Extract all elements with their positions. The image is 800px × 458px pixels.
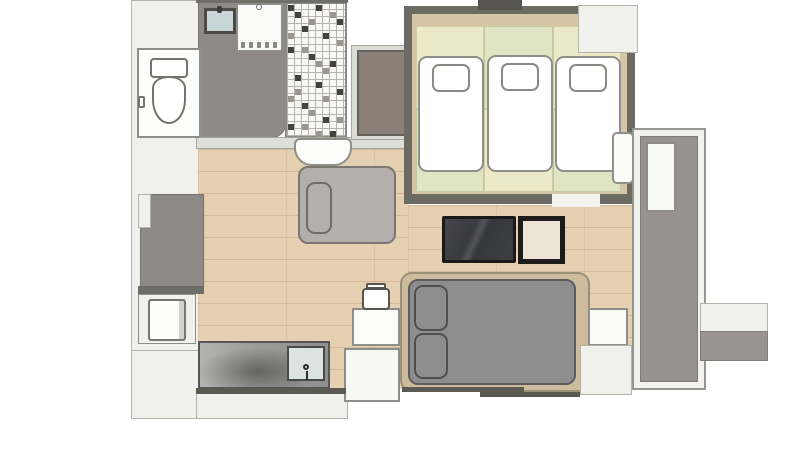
entrance-step <box>138 286 204 294</box>
floor-plan <box>0 0 800 458</box>
vanity-faucet-icon <box>217 6 222 13</box>
bed-south-wall-2 <box>480 392 580 397</box>
exterior-bottom-left-wall <box>131 350 201 419</box>
exterior-bottom-right-door <box>580 345 632 395</box>
neighbor-balcony-strip <box>700 331 768 361</box>
toilet-tank <box>150 58 188 78</box>
washing-machine-panel <box>241 42 278 48</box>
tatami-room-window <box>478 0 522 10</box>
toilet-door-knob-icon <box>138 96 145 108</box>
double-bed-pillow-1 <box>414 285 448 331</box>
bathroom-tile-pattern <box>288 5 294 11</box>
mini-fridge <box>148 299 186 341</box>
balcony-bench <box>646 142 676 212</box>
side-table <box>518 216 565 264</box>
exterior-top-right-notch <box>578 5 638 53</box>
toilet-bowl <box>152 76 186 124</box>
top-wall-line <box>196 0 348 3</box>
faucet-icon <box>303 364 309 370</box>
kettle-table <box>352 308 400 346</box>
futon-2-pillow <box>501 63 539 91</box>
neighbor-partition-white <box>700 303 768 333</box>
kitchen-south-wall <box>196 388 346 394</box>
washbasin <box>294 138 352 166</box>
closet <box>357 50 408 136</box>
step-block <box>344 348 400 402</box>
air-conditioner <box>612 132 634 184</box>
futon-1-pillow <box>432 64 470 92</box>
nightstand <box>588 308 628 346</box>
futon-3-pillow <box>569 64 607 92</box>
tatami-room-door-opening <box>552 194 600 207</box>
sofa-bed-pillow <box>306 182 332 234</box>
double-bed-pillow-2 <box>414 333 448 379</box>
kettle <box>362 288 390 310</box>
washing-machine-knob-icon <box>256 4 262 10</box>
faucet-stem-icon <box>306 371 308 380</box>
tv <box>442 216 516 263</box>
kettle-lid-icon <box>366 283 386 289</box>
bathroom-tile-floor <box>285 2 347 138</box>
entrance-corner-notch <box>138 194 151 228</box>
